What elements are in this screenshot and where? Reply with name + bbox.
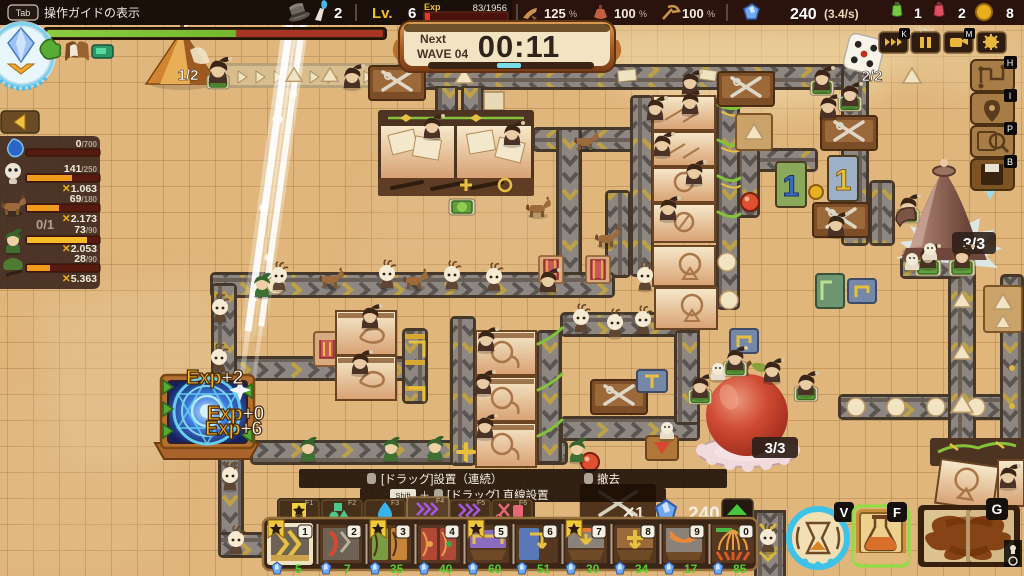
svg-text:1: 1	[302, 527, 308, 538]
svg-text:17: 17	[684, 562, 698, 576]
svg-text:35: 35	[390, 562, 404, 576]
svg-text:69/180: 69/180	[70, 193, 98, 205]
svg-text:8: 8	[1006, 5, 1014, 21]
svg-text:撤去: 撤去	[597, 472, 620, 486]
svg-text:125: 125	[544, 6, 566, 21]
svg-text:85: 85	[733, 562, 747, 576]
svg-text:0/700: 0/700	[76, 138, 98, 150]
svg-text:%: %	[639, 9, 647, 19]
svg-text:1: 1	[783, 170, 800, 203]
svg-text:I: I	[1009, 91, 1012, 101]
svg-text:F6: F6	[519, 500, 527, 507]
svg-text:F3: F3	[391, 500, 399, 507]
svg-text:51: 51	[537, 562, 551, 576]
svg-text:2: 2	[351, 527, 357, 538]
svg-text:6: 6	[408, 5, 416, 22]
svg-text:100: 100	[682, 6, 704, 21]
svg-text:%: %	[569, 9, 577, 19]
svg-text:Exp: Exp	[424, 2, 441, 12]
svg-text:5: 5	[498, 527, 504, 538]
svg-text:Space: Space	[916, 26, 935, 33]
svg-text:(3.4/s): (3.4/s)	[824, 7, 859, 21]
svg-text:K: K	[901, 30, 907, 39]
svg-text:1/2: 1/2	[178, 67, 199, 84]
svg-text:✕5.363: ✕5.363	[62, 273, 97, 285]
svg-text:Exp+6: Exp+6	[205, 418, 262, 440]
svg-text:5: 5	[295, 562, 302, 576]
svg-text:60: 60	[488, 562, 502, 576]
svg-text:00:11: 00:11	[478, 29, 561, 64]
svg-text:8: 8	[645, 527, 651, 538]
svg-text:F5: F5	[477, 500, 485, 507]
svg-text:2: 2	[334, 5, 342, 22]
svg-text:141/250: 141/250	[64, 163, 98, 175]
svg-text:V: V	[840, 505, 849, 520]
svg-text:4: 4	[449, 527, 455, 538]
svg-text:9: 9	[694, 527, 700, 538]
svg-text:7: 7	[596, 527, 602, 538]
svg-text:F2: F2	[348, 500, 356, 507]
svg-text:F4: F4	[436, 498, 444, 505]
svg-text:1: 1	[914, 5, 922, 21]
svg-text:2/2: 2/2	[862, 68, 883, 85]
svg-text:100: 100	[614, 6, 636, 21]
svg-text:3: 3	[400, 527, 406, 538]
svg-text:6: 6	[547, 527, 553, 538]
svg-text:操作ガイドの表示: 操作ガイドの表示	[44, 5, 140, 20]
svg-text:[ドラッグ]設置（連続）: [ドラッグ]設置（連続）	[381, 472, 502, 486]
svg-text:Lv.: Lv.	[372, 5, 393, 22]
svg-text:1: 1	[835, 164, 852, 197]
svg-text:G: G	[992, 501, 1003, 517]
svg-text:Next: Next	[420, 32, 446, 46]
svg-text:B: B	[1007, 157, 1013, 167]
svg-text:WAVE 04: WAVE 04	[417, 47, 468, 61]
svg-text:Tab: Tab	[16, 8, 31, 18]
svg-text:73/90: 73/90	[74, 224, 97, 236]
svg-text:2: 2	[958, 5, 966, 21]
svg-text:83/1956: 83/1956	[473, 3, 507, 14]
svg-text:7: 7	[344, 562, 351, 576]
svg-text:F1: F1	[305, 500, 313, 507]
svg-text:P: P	[1007, 124, 1013, 134]
svg-text:240: 240	[790, 6, 817, 23]
svg-text:28/90: 28/90	[74, 253, 97, 265]
svg-text:3/3: 3/3	[765, 440, 786, 457]
svg-text:34: 34	[635, 562, 649, 576]
svg-text:0/1: 0/1	[36, 217, 54, 232]
svg-text:40: 40	[439, 562, 453, 576]
svg-text:H: H	[1007, 58, 1014, 68]
svg-text:F: F	[893, 505, 901, 520]
svg-text:%: %	[707, 9, 715, 19]
svg-text:M: M	[966, 30, 973, 39]
svg-text:30: 30	[586, 562, 600, 576]
svg-text:0: 0	[743, 527, 749, 538]
